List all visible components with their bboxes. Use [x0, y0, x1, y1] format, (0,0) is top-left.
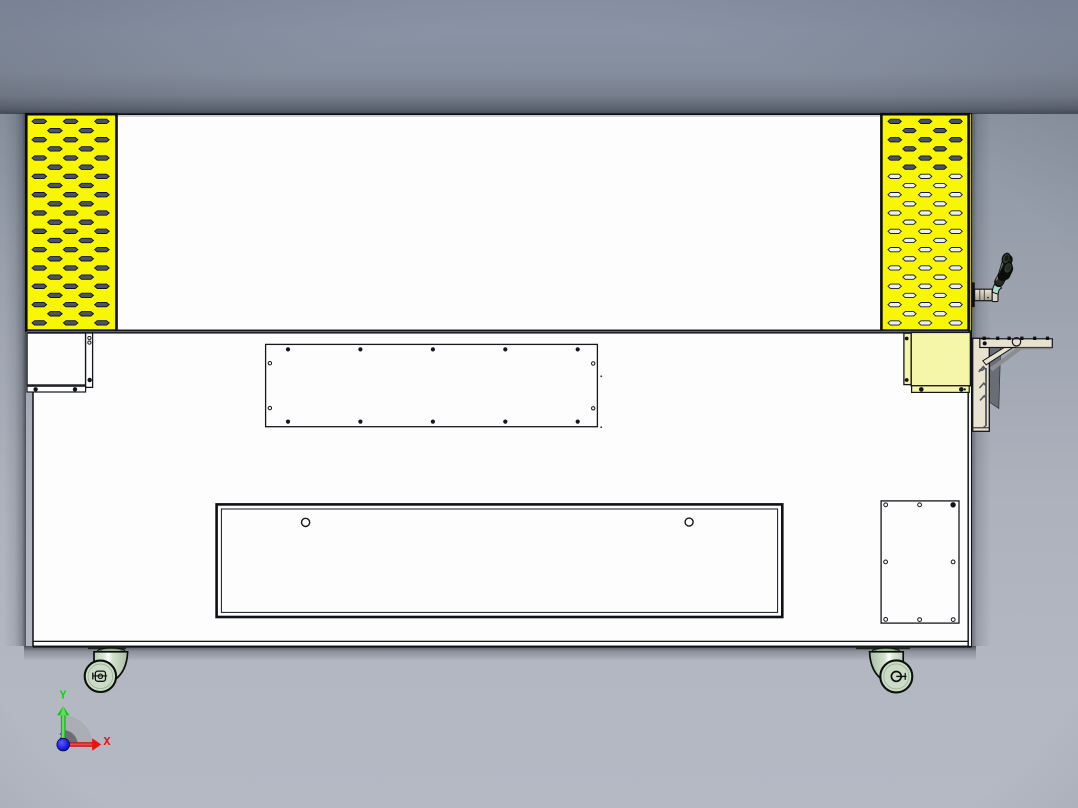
svg-text:Y: Y [60, 689, 67, 702]
svg-text:X: X [103, 735, 111, 749]
